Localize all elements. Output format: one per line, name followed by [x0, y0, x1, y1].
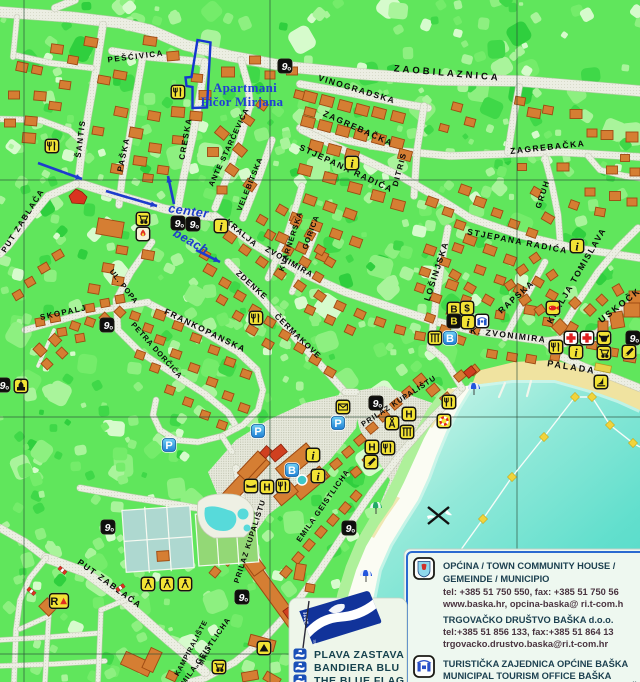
- svg-text:B: B: [450, 317, 457, 328]
- svg-text:PLAVA ZASTAVA: PLAVA ZASTAVA: [314, 649, 404, 661]
- svg-text:P: P: [254, 426, 261, 438]
- svg-text:OPĆINA / TOWN COMMUNITY HOUSE: OPĆINA / TOWN COMMUNITY HOUSE /: [443, 560, 616, 571]
- svg-text:BANDIERA BLU: BANDIERA BLU: [314, 662, 400, 674]
- svg-text:A: A: [388, 420, 395, 431]
- svg-text:H: H: [405, 410, 412, 421]
- svg-text:Fičor Mirjana: Fičor Mirjana: [201, 94, 284, 109]
- svg-text:o: o: [351, 529, 355, 535]
- svg-text:THE BLUE FLAG: THE BLUE FLAG: [314, 675, 405, 682]
- svg-text:o: o: [635, 339, 639, 345]
- svg-text:P: P: [334, 418, 341, 430]
- svg-text:o: o: [244, 598, 248, 604]
- svg-text:trgovacko.drustvo.baska@ri.t-c: trgovacko.drustvo.baska@ri.t-com.hr: [443, 639, 608, 649]
- svg-text:o: o: [378, 404, 382, 410]
- svg-text:GEMEINDE / MUNICIPIO: GEMEINDE / MUNICIPIO: [443, 574, 549, 584]
- svg-text:P: P: [165, 440, 172, 452]
- svg-text:B: B: [446, 333, 454, 345]
- svg-text:o: o: [5, 386, 9, 392]
- svg-text:o: o: [287, 67, 291, 73]
- svg-text:TRGOVAČKO DRUŠTVO BAŠKA d.o.o.: TRGOVAČKO DRUŠTVO BAŠKA d.o.o.: [443, 614, 613, 625]
- svg-text:H: H: [263, 483, 270, 494]
- svg-text:o: o: [110, 528, 114, 534]
- svg-text:R: R: [50, 596, 58, 608]
- svg-text:MUNICIPAL TOURISM OFFICE BAŠKA: MUNICIPAL TOURISM OFFICE BAŠKA: [443, 670, 612, 681]
- svg-text:$: $: [464, 304, 470, 315]
- svg-text:tel:+385 51 856 133, fax:+385: tel:+385 51 856 133, fax:+385 51 864 13: [443, 627, 614, 637]
- svg-text:o: o: [180, 224, 184, 230]
- svg-text:o: o: [195, 225, 199, 231]
- svg-text:tel: +385 51 750 550, fax: +38: tel: +385 51 750 550, fax: +385 51 750 5…: [443, 587, 619, 597]
- svg-text:H: H: [368, 443, 375, 454]
- svg-text:B: B: [288, 465, 296, 477]
- svg-text:www.baska.hr, opcina-baska@ r: www.baska.hr, opcina-baska@ ri.t-com.h: [442, 599, 624, 609]
- svg-text:o: o: [109, 326, 113, 332]
- svg-text:TURISTIČKA ZAJEDNICA OPĆINE BA: TURISTIČKA ZAJEDNICA OPĆINE BAŠKA: [443, 658, 629, 669]
- svg-text:Apartmani: Apartmani: [213, 80, 277, 95]
